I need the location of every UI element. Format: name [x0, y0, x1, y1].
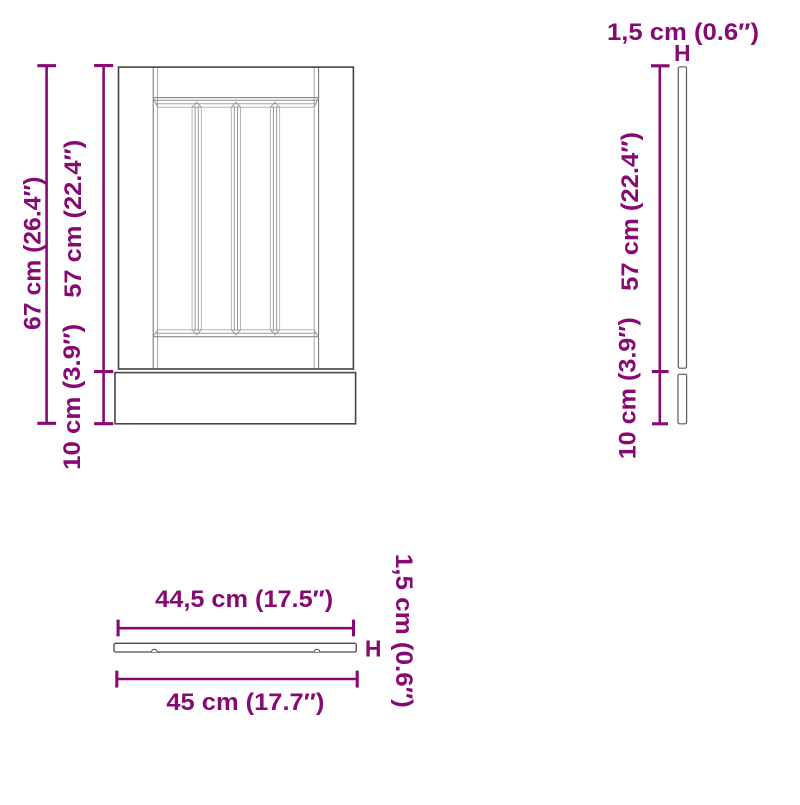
svg-text:57 cm (22.4″): 57 cm (22.4″) — [617, 132, 644, 291]
svg-text:45 cm (17.7″): 45 cm (17.7″) — [166, 689, 324, 716]
svg-text:44,5 cm (17.5″): 44,5 cm (17.5″) — [155, 586, 333, 613]
svg-text:67 cm (26.4″): 67 cm (26.4″) — [19, 176, 46, 330]
svg-text:57 cm (22.4″): 57 cm (22.4″) — [60, 140, 87, 298]
svg-text:10 cm (3.9″): 10 cm (3.9″) — [59, 324, 86, 470]
svg-text:1,5 cm (0.6″): 1,5 cm (0.6″) — [390, 554, 417, 708]
svg-text:H: H — [365, 635, 382, 661]
svg-text:10 cm (3.9″): 10 cm (3.9″) — [615, 317, 642, 459]
svg-text:H: H — [674, 40, 691, 66]
